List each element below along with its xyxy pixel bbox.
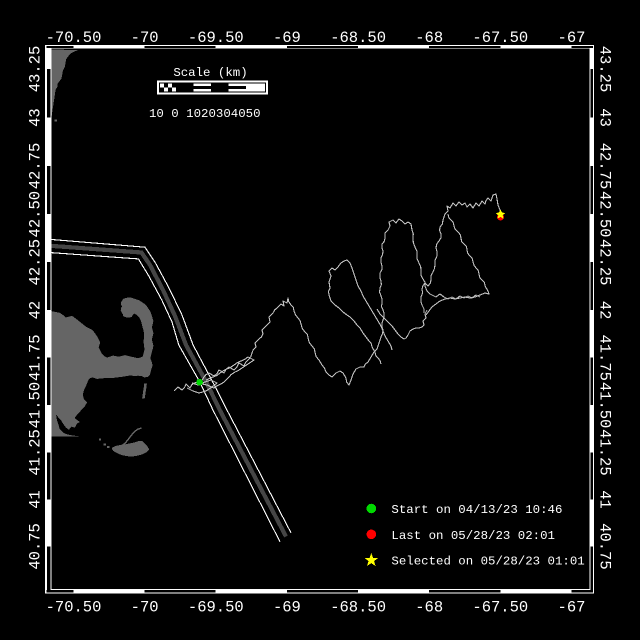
svg-text:43.25: 43.25 bbox=[27, 46, 45, 93]
svg-text:42.25: 42.25 bbox=[596, 239, 614, 286]
svg-text:41.75: 41.75 bbox=[27, 334, 45, 381]
svg-text:42: 42 bbox=[596, 301, 614, 320]
svg-text:Scale (km): Scale (km) bbox=[173, 66, 247, 80]
svg-text:43: 43 bbox=[596, 108, 614, 127]
svg-text:41.50: 41.50 bbox=[27, 382, 45, 429]
svg-text:42.75: 42.75 bbox=[596, 143, 614, 190]
svg-text:42.75: 42.75 bbox=[27, 143, 45, 190]
svg-text:41.25: 41.25 bbox=[596, 429, 614, 476]
svg-text:40.75: 40.75 bbox=[27, 523, 45, 570]
svg-text:-68.50: -68.50 bbox=[330, 599, 386, 617]
svg-text:-69.50: -69.50 bbox=[188, 29, 244, 47]
svg-text:-67: -67 bbox=[558, 29, 586, 47]
svg-text:-70: -70 bbox=[131, 599, 159, 617]
svg-text:Selected on 05/28/23 01:01: Selected on 05/28/23 01:01 bbox=[391, 555, 584, 569]
svg-text:42.50: 42.50 bbox=[27, 191, 45, 238]
svg-text:-69.50: -69.50 bbox=[188, 599, 244, 617]
svg-text:41.50: 41.50 bbox=[596, 382, 614, 429]
svg-text:41: 41 bbox=[27, 490, 45, 509]
svg-text:-70.50: -70.50 bbox=[46, 599, 102, 617]
svg-text:-70: -70 bbox=[131, 29, 159, 47]
svg-text:40.75: 40.75 bbox=[596, 523, 614, 570]
svg-text:-69: -69 bbox=[273, 599, 301, 617]
svg-text:41.25: 41.25 bbox=[27, 429, 45, 476]
svg-text:-68.50: -68.50 bbox=[330, 29, 386, 47]
svg-text:-67.50: -67.50 bbox=[472, 599, 528, 617]
svg-text:10 0 1020304050: 10 0 1020304050 bbox=[149, 107, 261, 121]
svg-text:-70.50: -70.50 bbox=[46, 29, 102, 47]
svg-text:43.25: 43.25 bbox=[596, 46, 614, 93]
svg-text:-68: -68 bbox=[415, 599, 443, 617]
svg-text:41: 41 bbox=[596, 490, 614, 509]
svg-text:41.75: 41.75 bbox=[596, 334, 614, 381]
svg-text:43: 43 bbox=[27, 108, 45, 127]
svg-text:-69: -69 bbox=[273, 29, 301, 47]
svg-text:-67: -67 bbox=[558, 599, 586, 617]
svg-text:42.50: 42.50 bbox=[596, 191, 614, 238]
svg-text:Last on 05/28/23 02:01: Last on 05/28/23 02:01 bbox=[391, 529, 555, 543]
svg-text:-68: -68 bbox=[415, 29, 443, 47]
svg-text:-67.50: -67.50 bbox=[472, 29, 528, 47]
svg-text:42.25: 42.25 bbox=[27, 239, 45, 286]
svg-text:42: 42 bbox=[27, 301, 45, 320]
svg-text:Start on 04/13/23 10:46: Start on 04/13/23 10:46 bbox=[391, 503, 562, 517]
